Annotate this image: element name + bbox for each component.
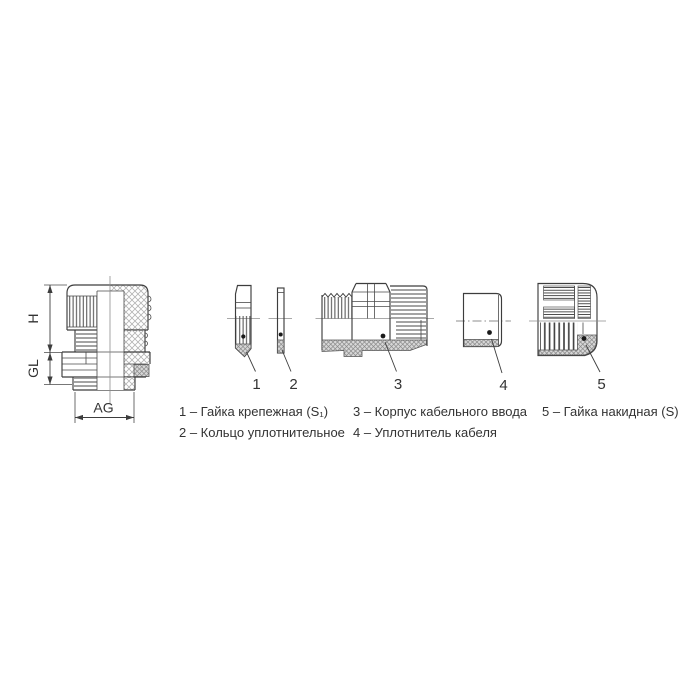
dim-ag-label: AG (93, 400, 113, 416)
assembled-view: H GL AG (25, 276, 151, 423)
ag-arrow-right (126, 415, 134, 420)
part-4-cable-seal: 4 (456, 294, 511, 395)
part-1-callout: 1 (252, 376, 260, 393)
part-3-body: 3 (316, 284, 435, 394)
part-3-thread-crest (322, 294, 352, 298)
part-2-leader-dot (279, 333, 283, 337)
ag-arrow-left (75, 415, 83, 420)
part-3-leader-dot (381, 334, 386, 339)
part-1-leader-dot (241, 334, 245, 338)
dimension-ag: AG (75, 392, 134, 423)
part-2-leader (282, 350, 291, 372)
part-5-cap-nut: 5 (529, 284, 606, 394)
dim-gl-label: GL (25, 359, 41, 378)
legend-item-5: 5 – Гайка накидная (S) (542, 404, 679, 419)
part-5-thread-block-a (544, 286, 575, 300)
part-3-rubber (322, 340, 427, 357)
h-arrow-bottom (47, 345, 52, 353)
part-2-callout: 2 (289, 376, 297, 393)
part-5-callout: 5 (597, 376, 605, 393)
part-4-outline (464, 294, 502, 347)
gl-arrow-bottom (47, 377, 52, 385)
legend: 1 – Гайка крепежная (S₁) 2 – Кольцо упло… (179, 404, 679, 440)
legend-item-4: 4 – Уплотнитель кабеля (353, 425, 497, 440)
dim-h-label: H (25, 313, 41, 323)
legend-item-3: 3 – Корпус кабельного ввода (353, 404, 528, 419)
seal-ring-in-assembly (134, 365, 149, 377)
part-3-thread-lines (323, 297, 352, 319)
legend-item-2: 2 – Кольцо уплотнительное (179, 425, 345, 440)
part-2-rubber (278, 340, 285, 353)
part-5-thread-block-c (578, 286, 591, 319)
part-4-callout: 4 (499, 377, 507, 394)
part-1-lock-nut: 1 (227, 286, 261, 394)
cable-gland-drawing: H GL AG 1 (0, 0, 700, 700)
technical-drawing-page: H GL AG 1 (0, 0, 700, 700)
legend-item-1: 1 – Гайка крепежная (S₁) (179, 404, 328, 419)
h-arrow-top (47, 285, 52, 293)
part-5-knurl-ribs (540, 323, 578, 353)
part-3-ribs-lower (396, 320, 426, 342)
part-3-callout: 3 (394, 376, 402, 393)
part-1-leader (247, 352, 256, 372)
part-4-leader-dot (487, 330, 492, 335)
dimension-gl: GL (25, 353, 72, 385)
part-5-thread-block-b (544, 307, 575, 319)
assembled-cable-hole (97, 291, 124, 390)
part-5-leader-dot (582, 336, 587, 341)
gl-arrow-top (47, 353, 52, 361)
part-1-knurl (237, 316, 251, 344)
part-1-rubber (236, 344, 252, 357)
part-2-sealing-ring: 2 (269, 288, 298, 393)
part-3-ribs-upper (391, 287, 426, 318)
